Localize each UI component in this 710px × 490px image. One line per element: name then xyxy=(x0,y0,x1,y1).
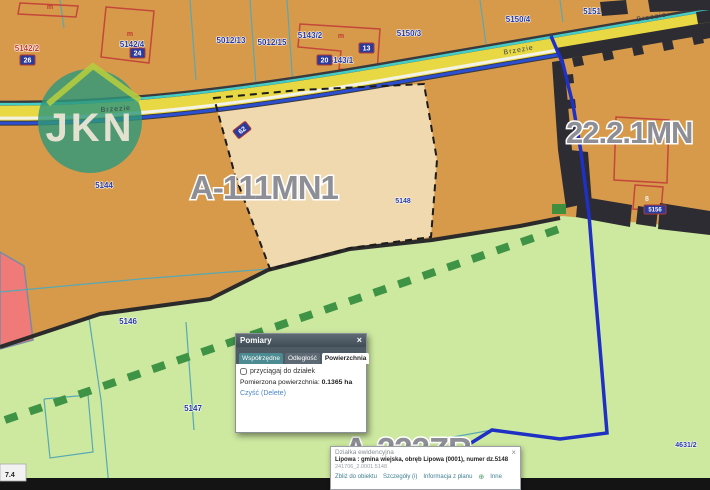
parcel-label-5151: 5151 xyxy=(583,7,601,16)
more-link[interactable]: Inne xyxy=(490,474,502,480)
corner-readout: 7.4 xyxy=(0,464,26,481)
zone-label-2221mn: 22.2.1MN xyxy=(566,115,692,150)
circle-plus-icon[interactable]: ⊕ xyxy=(478,473,484,481)
measure-dialog-title: Pomiary xyxy=(240,336,272,345)
measure-dialog-tabs: Współrzędne Odległość Powierzchnia xyxy=(236,347,366,364)
parcel-info-panel: Działka ewidencyjna × Lipowa : gmina wie… xyxy=(330,446,521,490)
snap-to-parcels-label: przyciągaj do działek xyxy=(250,368,315,375)
tab-coordinates[interactable]: Współrzędne xyxy=(239,353,283,364)
measured-area-label: Pomierzona powierzchnia: xyxy=(240,379,320,386)
parcel-panel-header: Działka ewidencyjna × xyxy=(335,449,516,456)
map-canvas[interactable]: JKN A-111MN1 22.2.1MN A-222ZR 5142/2 514… xyxy=(0,0,710,490)
parcel-label-5146: 5146 xyxy=(119,317,137,326)
parcel-label-5148: 5148 xyxy=(395,198,411,205)
parcel-label-5147: 5147 xyxy=(184,404,202,413)
mark-m-1: m xyxy=(47,4,53,11)
tab-area[interactable]: Powierzchnia xyxy=(322,353,370,364)
parcel-label-5143-2: 5143/2 xyxy=(298,31,323,40)
parcel-id: 241706_2.0001.5148 xyxy=(335,464,516,470)
mark-m-2: m xyxy=(127,31,133,38)
tab-distance[interactable]: Odległość xyxy=(285,353,320,364)
parcel-panel-title: Działka ewidencyjna xyxy=(335,449,394,456)
clear-measure-link[interactable]: Czyść (Delete) xyxy=(240,390,286,397)
measure-dialog: Pomiary × Współrzędne Odległość Powierzc… xyxy=(235,333,367,433)
corner-readout-text: 7.4 xyxy=(5,472,15,479)
parcel-label-4631-2: 4631/2 xyxy=(675,442,697,449)
measure-dialog-close-icon[interactable]: × xyxy=(357,336,362,345)
measure-dialog-body: przyciągaj do działek Pomierzona powierz… xyxy=(236,364,366,401)
plan-info-link[interactable]: Informacja z planu xyxy=(423,474,472,480)
badge-13: 13 xyxy=(363,46,371,53)
building-number-8: 8 xyxy=(645,196,649,203)
parcel-label-5150-4: 5150/4 xyxy=(506,15,531,24)
parcel-label-5144: 5144 xyxy=(95,181,113,190)
parcel-label-5142-2: 5142/2 xyxy=(15,44,40,53)
measure-dialog-titlebar[interactable]: Pomiary × xyxy=(236,334,366,347)
badge-24: 24 xyxy=(134,51,142,58)
measured-area-value: 0.1365 ha xyxy=(322,379,353,386)
zone-label-a111mn1: A-111MN1 xyxy=(190,169,339,206)
parcel-label-5150-3: 5150/3 xyxy=(397,29,422,38)
measured-area-row: Pomierzona powierzchnia: 0.1365 ha xyxy=(240,379,362,386)
parcel-label-5012-13: 5012/13 xyxy=(217,36,246,45)
parcel-label-5012-15: 5012/15 xyxy=(258,38,287,47)
snap-to-parcels-checkbox[interactable] xyxy=(240,368,247,375)
details-link[interactable]: Szczegóły (i) xyxy=(383,474,417,480)
badge-26: 26 xyxy=(24,58,32,65)
snap-to-parcels-row[interactable]: przyciągaj do działek xyxy=(240,368,362,375)
mark-m-3: m xyxy=(338,33,344,40)
badge-20: 20 xyxy=(321,58,329,65)
parcel-description: Lipowa : gmina wiejska, obręb Lipowa (00… xyxy=(335,457,516,463)
parcel-label-5143-1: 5143/1 xyxy=(329,56,354,65)
parcel-panel-close-icon[interactable]: × xyxy=(511,449,516,456)
parcel-actions: Zbliż do obiektu Szczegóły (i) Informacj… xyxy=(335,473,516,481)
zoom-to-object-link[interactable]: Zbliż do obiektu xyxy=(335,474,377,480)
badge-5156: 5156 xyxy=(648,208,662,214)
